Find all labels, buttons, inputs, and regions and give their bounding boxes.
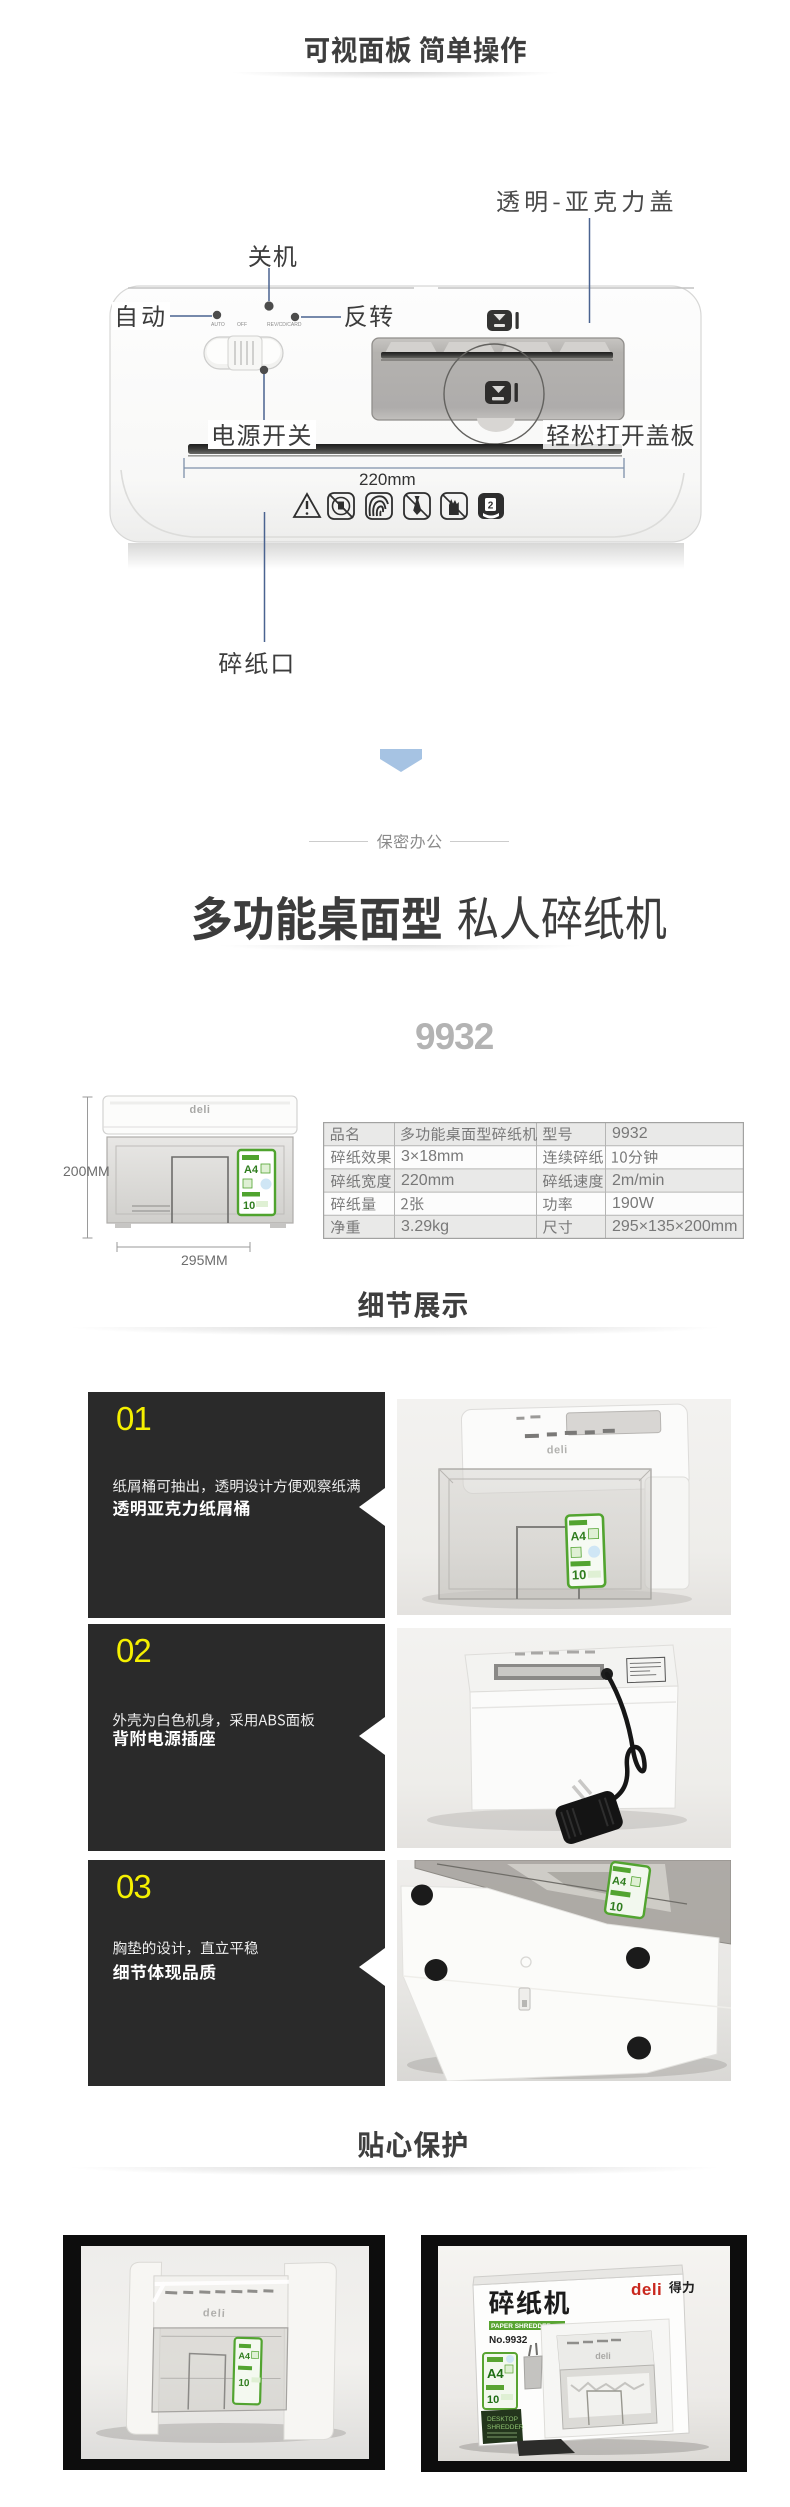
svg-text:No.9932: No.9932 bbox=[489, 2335, 528, 2346]
svg-text:A4: A4 bbox=[611, 1875, 627, 1889]
svg-text:deli: deli bbox=[190, 1104, 211, 1116]
svg-text:REV/CD/CARD: REV/CD/CARD bbox=[267, 322, 302, 328]
svg-text:10: 10 bbox=[572, 1567, 587, 1582]
svg-text:A4: A4 bbox=[238, 2351, 250, 2361]
svg-text:2: 2 bbox=[488, 501, 494, 512]
svg-text:10: 10 bbox=[609, 1899, 624, 1915]
svg-text:A4: A4 bbox=[570, 1529, 586, 1544]
svg-text:deli: deli bbox=[547, 1444, 568, 1457]
svg-text:deli: deli bbox=[203, 2307, 226, 2320]
svg-text:10: 10 bbox=[487, 2394, 499, 2406]
svg-text:SHREDDER: SHREDDER bbox=[487, 2424, 524, 2431]
svg-text:A4: A4 bbox=[487, 2366, 504, 2381]
svg-text:deli: deli bbox=[631, 2280, 662, 2299]
svg-text:deli: deli bbox=[595, 2351, 611, 2361]
svg-text:AUTO: AUTO bbox=[211, 322, 225, 328]
svg-text:OFF: OFF bbox=[237, 322, 247, 328]
svg-text:A4: A4 bbox=[244, 1164, 259, 1176]
svg-text:10: 10 bbox=[238, 2378, 250, 2389]
svg-text:10: 10 bbox=[243, 1200, 255, 1212]
svg-text:DESKTOP: DESKTOP bbox=[487, 2416, 518, 2423]
